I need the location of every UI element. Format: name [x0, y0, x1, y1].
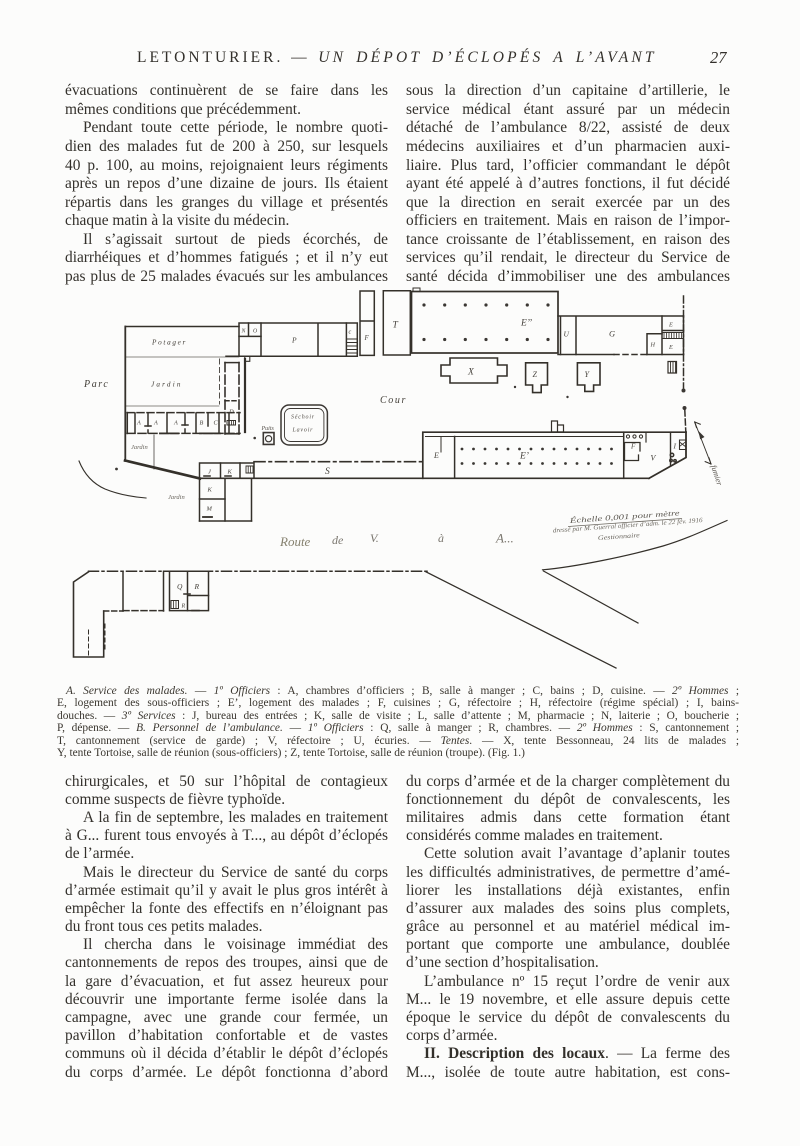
svg-text:Séchoir: Séchoir: [291, 415, 315, 421]
svg-text:F: F: [630, 443, 636, 451]
svg-text:Z: Z: [533, 370, 538, 379]
svg-text:T: T: [393, 321, 399, 331]
svg-text:E’: E’: [519, 452, 529, 462]
svg-text:U: U: [564, 330, 570, 339]
svg-text:fumier: fumier: [709, 464, 724, 487]
svg-text:A: A: [136, 420, 141, 427]
svg-text:E: E: [668, 322, 673, 329]
svg-text:E’’: E’’: [520, 319, 532, 329]
svg-text:D: D: [228, 409, 234, 416]
svg-text:A: A: [173, 420, 178, 427]
svg-text:Puits: Puits: [261, 426, 275, 432]
svg-text:Potager: Potager: [151, 339, 187, 347]
svg-text:Cour: Cour: [380, 395, 407, 406]
svg-text:S: S: [325, 467, 330, 477]
svg-text:Q: Q: [177, 582, 183, 591]
svg-text:E: E: [668, 344, 673, 351]
svg-text:K: K: [207, 487, 213, 494]
svg-text:N: N: [241, 329, 247, 335]
svg-text:de: de: [332, 533, 344, 547]
svg-text:K: K: [227, 469, 233, 476]
svg-text:R: R: [181, 604, 186, 610]
svg-text:Jardin: Jardin: [168, 494, 185, 501]
svg-text:B: B: [200, 420, 204, 427]
svg-text:E: E: [433, 451, 439, 460]
svg-text:Route: Route: [279, 534, 311, 549]
svg-text:V.: V.: [370, 531, 379, 545]
svg-text:V: V: [651, 454, 657, 463]
svg-text:I: I: [673, 442, 677, 451]
svg-text:P: P: [291, 336, 297, 345]
svg-text:Gestionnaire: Gestionnaire: [598, 532, 641, 542]
svg-text:O: O: [253, 329, 258, 335]
svg-text:A: A: [153, 420, 158, 427]
svg-text:A...: A...: [495, 531, 514, 546]
svg-text:Lavoir: Lavoir: [292, 428, 314, 434]
svg-text:G: G: [609, 329, 615, 339]
svg-text:à: à: [438, 531, 444, 545]
svg-text:R: R: [194, 582, 200, 591]
svg-text:H: H: [650, 342, 656, 349]
svg-text:Jardin: Jardin: [131, 444, 148, 451]
svg-text:Parc: Parc: [83, 379, 109, 390]
svg-text:F: F: [364, 335, 370, 342]
svg-text:Jardin: Jardin: [151, 381, 183, 389]
svg-text:J: J: [208, 469, 212, 476]
svg-text:X: X: [467, 368, 475, 378]
svg-text:M: M: [206, 506, 213, 513]
svg-text:c: c: [349, 329, 352, 336]
svg-text:C: C: [214, 420, 219, 427]
svg-text:Y: Y: [585, 370, 591, 379]
